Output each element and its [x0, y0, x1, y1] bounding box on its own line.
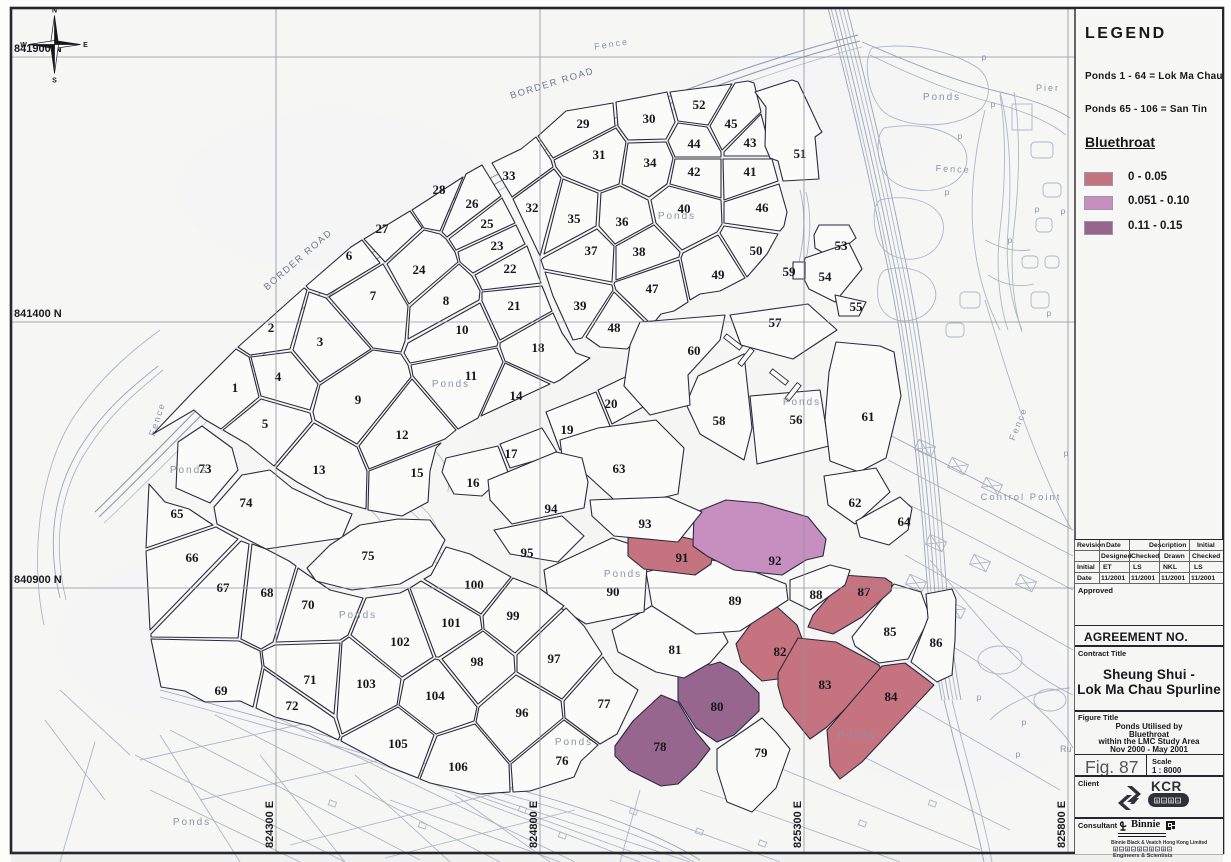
svg-text:76: 76	[556, 753, 570, 768]
svg-text:10: 10	[456, 322, 469, 337]
svg-text:83: 83	[819, 677, 833, 692]
svg-text:33: 33	[503, 168, 517, 183]
svg-text:13: 13	[313, 462, 327, 477]
svg-text:Ponds: Ponds	[432, 379, 470, 390]
svg-text:8: 8	[443, 293, 450, 308]
svg-text:14: 14	[510, 388, 524, 403]
svg-text:94: 94	[545, 501, 559, 516]
svg-text:Ponds: Ponds	[838, 730, 876, 741]
svg-text:7: 7	[370, 288, 377, 303]
svg-text:41: 41	[744, 164, 757, 179]
svg-text:62: 62	[849, 495, 862, 510]
svg-text:78: 78	[654, 739, 668, 754]
svg-text:56: 56	[790, 412, 804, 427]
svg-text:104: 104	[425, 688, 445, 703]
svg-text:20: 20	[605, 396, 618, 411]
svg-text:p: p	[991, 99, 996, 109]
svg-text:Ponds: Ponds	[339, 610, 377, 621]
svg-text:824800 E: 824800 E	[528, 801, 540, 848]
svg-text:27: 27	[376, 221, 390, 236]
svg-text:58: 58	[713, 413, 727, 428]
svg-text:E: E	[83, 42, 88, 49]
svg-text:87: 87	[858, 584, 872, 599]
svg-text:825800 E: 825800 E	[1056, 801, 1068, 848]
svg-text:30: 30	[643, 111, 656, 126]
svg-text:45: 45	[725, 116, 739, 131]
svg-text:840900 N: 840900 N	[14, 574, 62, 586]
svg-text:82: 82	[774, 644, 787, 659]
svg-text:p: p	[1047, 308, 1052, 318]
svg-text:p: p	[958, 131, 963, 141]
svg-text:Control Point: Control Point	[981, 492, 1062, 503]
svg-text:26: 26	[466, 196, 480, 211]
svg-text:81: 81	[669, 642, 682, 657]
svg-text:100: 100	[464, 577, 484, 592]
svg-text:42: 42	[688, 164, 701, 179]
svg-text:71: 71	[304, 672, 317, 687]
svg-text:66: 66	[186, 550, 200, 565]
svg-text:77: 77	[598, 696, 612, 711]
svg-text:105: 105	[388, 736, 408, 751]
svg-text:Ponds: Ponds	[658, 211, 696, 222]
svg-text:28: 28	[433, 182, 447, 197]
svg-text:90: 90	[607, 584, 620, 599]
svg-text:Pier: Pier	[1036, 83, 1060, 93]
svg-text:Ponds: Ponds	[783, 397, 821, 408]
svg-text:60: 60	[688, 343, 701, 358]
svg-text:61: 61	[862, 409, 875, 424]
svg-text:p: p	[1016, 749, 1021, 759]
svg-text:95: 95	[521, 545, 535, 560]
svg-text:84: 84	[885, 689, 899, 704]
svg-text:37: 37	[585, 243, 599, 258]
svg-text:19: 19	[561, 422, 575, 437]
svg-text:p: p	[945, 187, 950, 197]
svg-text:57: 57	[769, 315, 783, 330]
svg-text:55: 55	[850, 299, 864, 314]
svg-text:3: 3	[317, 334, 324, 349]
svg-text:825300 E: 825300 E	[792, 801, 804, 848]
svg-text:Ru: Ru	[1060, 744, 1072, 754]
svg-text:Ponds: Ponds	[604, 569, 642, 580]
svg-text:44: 44	[688, 136, 702, 151]
svg-text:Ponds: Ponds	[555, 737, 593, 748]
svg-text:12: 12	[396, 427, 409, 442]
svg-text:91: 91	[676, 550, 689, 565]
svg-text:Fence: Fence	[935, 163, 970, 175]
svg-text:Ponds: Ponds	[173, 817, 211, 828]
svg-text:S: S	[52, 78, 57, 85]
svg-text:97: 97	[548, 651, 562, 666]
svg-text:65: 65	[171, 506, 185, 521]
svg-text:p: p	[1061, 206, 1066, 216]
svg-text:80: 80	[711, 699, 724, 714]
svg-text:103: 103	[356, 676, 376, 691]
svg-text:102: 102	[390, 634, 410, 649]
svg-text:74: 74	[240, 495, 254, 510]
svg-text:98: 98	[471, 654, 485, 669]
svg-text:18: 18	[532, 340, 546, 355]
svg-text:85: 85	[884, 624, 898, 639]
svg-text:p: p	[977, 692, 982, 702]
svg-text:34: 34	[644, 155, 658, 170]
svg-text:93: 93	[639, 516, 653, 531]
svg-text:p: p	[1035, 204, 1040, 214]
svg-text:Ponds: Ponds	[923, 92, 961, 103]
svg-text:79: 79	[755, 745, 769, 760]
svg-text:824300 E: 824300 E	[264, 801, 276, 848]
svg-text:64: 64	[898, 514, 912, 529]
svg-text:89: 89	[729, 593, 743, 608]
svg-text:50: 50	[750, 243, 763, 258]
svg-text:16: 16	[467, 475, 481, 490]
svg-text:841400 N: 841400 N	[14, 308, 62, 320]
svg-text:1: 1	[232, 380, 239, 395]
svg-text:43: 43	[744, 135, 758, 150]
svg-text:75: 75	[362, 548, 376, 563]
svg-text:86: 86	[930, 635, 944, 650]
svg-text:46: 46	[756, 200, 770, 215]
svg-text:106: 106	[448, 759, 468, 774]
svg-text:25: 25	[481, 216, 495, 231]
svg-text:67: 67	[217, 580, 231, 595]
svg-text:70: 70	[302, 597, 315, 612]
svg-text:15: 15	[411, 465, 425, 480]
svg-text:36: 36	[616, 214, 630, 229]
svg-text:p: p	[1022, 717, 1027, 727]
svg-text:6: 6	[346, 248, 353, 263]
svg-text:51: 51	[794, 146, 807, 161]
svg-text:38: 38	[633, 244, 647, 259]
svg-text:99: 99	[507, 608, 521, 623]
svg-text:35: 35	[568, 211, 582, 226]
svg-text:29: 29	[577, 116, 591, 131]
svg-text:52: 52	[693, 97, 706, 112]
svg-text:88: 88	[810, 587, 824, 602]
svg-text:69: 69	[215, 683, 229, 698]
svg-text:21: 21	[508, 298, 521, 313]
svg-text:59: 59	[783, 264, 797, 279]
svg-text:68: 68	[261, 585, 275, 600]
svg-text:49: 49	[712, 267, 726, 282]
svg-text:92: 92	[769, 553, 782, 568]
svg-text:31: 31	[593, 147, 606, 162]
svg-text:54: 54	[819, 269, 833, 284]
svg-text:47: 47	[646, 281, 660, 296]
svg-text:W: W	[20, 42, 27, 49]
svg-text:22: 22	[504, 261, 517, 276]
svg-text:p: p	[1008, 235, 1013, 245]
svg-text:32: 32	[526, 200, 539, 215]
svg-text:39: 39	[574, 298, 588, 313]
svg-text:101: 101	[441, 615, 461, 630]
svg-text:5: 5	[262, 416, 269, 431]
svg-text:63: 63	[613, 461, 627, 476]
svg-text:17: 17	[505, 446, 519, 461]
svg-text:Ponds: Ponds	[170, 465, 208, 476]
svg-text:9: 9	[355, 392, 362, 407]
svg-text:96: 96	[516, 705, 530, 720]
svg-text:53: 53	[835, 238, 849, 253]
svg-text:24: 24	[413, 262, 427, 277]
svg-text:72: 72	[286, 698, 299, 713]
svg-text:23: 23	[491, 238, 505, 253]
